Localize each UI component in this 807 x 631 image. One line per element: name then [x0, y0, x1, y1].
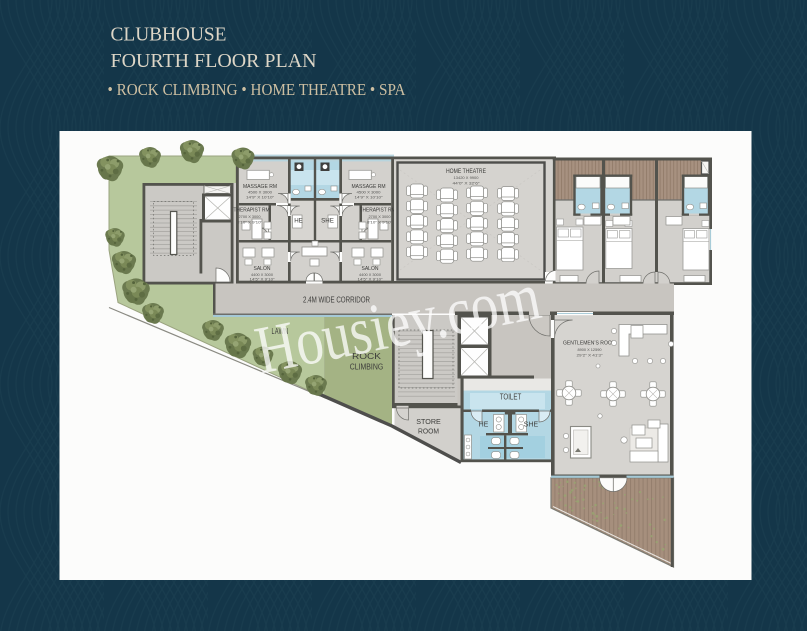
- svg-text:14’9” X 10’10”: 14’9” X 10’10”: [246, 195, 275, 199]
- svg-text:2700 X 3000: 2700 X 3000: [239, 215, 261, 219]
- svg-text:SHE: SHE: [321, 218, 334, 225]
- svg-text:SALON: SALON: [254, 266, 271, 272]
- svg-text:4400 X 3000: 4400 X 3000: [251, 273, 273, 277]
- svg-text:8900 X 12590: 8900 X 12590: [578, 348, 602, 352]
- svg-text:• ROCK CLIMBING • HOME THEATRE: • ROCK CLIMBING • HOME THEATRE • SPA: [108, 80, 406, 99]
- svg-text:MASSAGE RM: MASSAGE RM: [352, 184, 386, 190]
- svg-text:FOURTH FLOOR PLAN: FOURTH FLOOR PLAN: [111, 50, 317, 72]
- svg-text:14’5” X 9’10”: 14’5” X 9’10”: [250, 278, 276, 282]
- svg-text:CLUBHOUSE: CLUBHOUSE: [111, 23, 227, 45]
- svg-text:THERAPIST RM: THERAPIST RM: [360, 208, 396, 214]
- svg-text:MASSAGE RM: MASSAGE RM: [243, 184, 277, 190]
- svg-text:4500 X 3000: 4500 X 3000: [357, 191, 381, 195]
- svg-text:HE: HE: [479, 421, 489, 428]
- svg-text:HE: HE: [294, 218, 303, 225]
- svg-text:4400 X 3000: 4400 X 3000: [359, 273, 381, 277]
- svg-text:4500 X 3000: 4500 X 3000: [248, 191, 272, 195]
- svg-text:8’10” X 9’10”: 8’10” X 9’10”: [367, 221, 393, 225]
- svg-text:SHE: SHE: [524, 421, 539, 428]
- svg-text:13420 X 9900: 13420 X 9900: [454, 176, 479, 180]
- svg-text:STORE: STORE: [416, 417, 441, 426]
- svg-text:GENTLEMEN’S ROOM: GENTLEMEN’S ROOM: [563, 341, 616, 347]
- svg-text:8’10” X 9’10”: 8’10” X 9’10”: [237, 221, 263, 225]
- svg-text:HOME THEATRE: HOME THEATRE: [446, 168, 486, 175]
- svg-text:TOILET: TOILET: [500, 392, 522, 401]
- svg-text:29’2” X 41’3”: 29’2” X 41’3”: [577, 354, 604, 358]
- svg-text:14’9” X 10’10”: 14’9” X 10’10”: [355, 195, 384, 199]
- svg-text:SALON: SALON: [362, 266, 379, 272]
- svg-text:14’5” X 9’10”: 14’5” X 9’10”: [358, 278, 384, 282]
- svg-text:THERAPIST RM: THERAPIST RM: [234, 208, 270, 214]
- svg-text:ROOM: ROOM: [418, 427, 439, 436]
- svg-text:2700 X 3000: 2700 X 3000: [369, 215, 391, 219]
- svg-text:44’0” X 32’6”: 44’0” X 32’6”: [453, 182, 481, 186]
